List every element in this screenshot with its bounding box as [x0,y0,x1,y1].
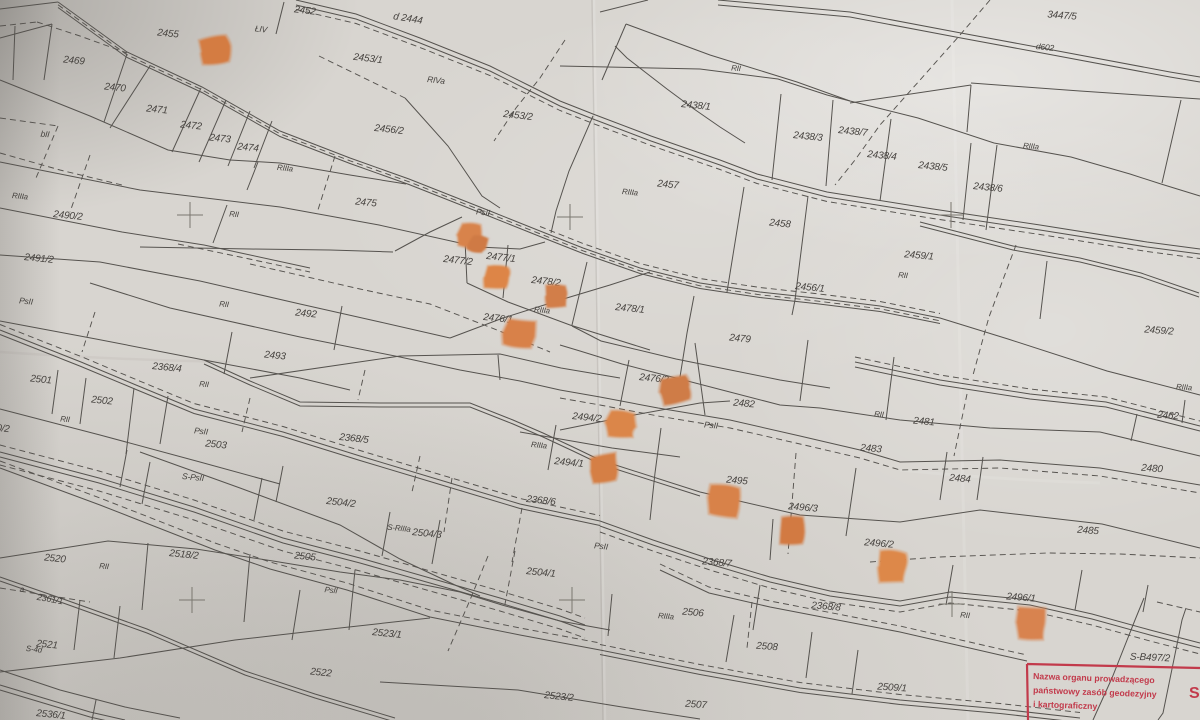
svg-text:2520: 2520 [43,552,67,565]
svg-text:2508: 2508 [755,641,779,654]
svg-text:2459/2: 2459/2 [1143,324,1175,337]
svg-text:2496/1: 2496/1 [1005,591,1036,604]
svg-text:2457: 2457 [656,178,680,191]
svg-text:2482: 2482 [732,397,756,410]
svg-text:2505: 2505 [293,550,317,563]
svg-text:PsII: PsII [19,295,35,306]
svg-text:RIIIa: RIIIa [1176,382,1193,392]
svg-text:2485: 2485 [1076,525,1100,538]
svg-text:2484: 2484 [948,472,972,485]
svg-text:d602: d602 [1035,41,1055,53]
svg-text:PsII: PsII [704,419,719,430]
svg-text:PsII: PsII [594,540,610,551]
svg-text:2506: 2506 [681,606,705,619]
svg-text:2455: 2455 [156,27,180,40]
svg-text:2458: 2458 [768,217,792,230]
svg-text:PsII: PsII [476,206,492,217]
svg-text:S-4d: S-4d [25,644,43,655]
svg-text:RIIIa: RIIIa [277,163,295,174]
svg-text:2507: 2507 [684,699,708,712]
svg-text:2481: 2481 [912,415,935,428]
svg-text:2501: 2501 [29,373,52,386]
svg-text:RII: RII [99,561,110,571]
svg-text:0/2: 0/2 [0,423,11,435]
svg-text:RII: RII [219,299,230,309]
svg-text:RII: RII [60,414,71,424]
svg-text:RIIIa: RIIIa [658,611,675,621]
svg-text:RIIIa: RIIIa [622,187,639,198]
svg-text:RII: RII [731,63,742,73]
svg-text:2480: 2480 [1140,463,1164,476]
svg-text:RII: RII [960,610,971,620]
svg-text:2493: 2493 [263,349,287,362]
svg-text:bII: bII [40,129,51,140]
svg-text:S: S [1189,685,1200,702]
svg-text:2492: 2492 [294,307,318,320]
svg-text:2462: 2462 [1156,410,1180,423]
svg-text:RIIIa: RIIIa [531,440,548,451]
svg-text:RIVa: RIVa [427,74,446,86]
svg-text:PsII: PsII [324,585,339,595]
svg-text:2536/1: 2536/1 [35,708,66,720]
svg-text:3447/5: 3447/5 [1047,9,1078,22]
svg-text:RII: RII [874,409,885,419]
svg-text:2522: 2522 [309,666,333,679]
svg-text:S-B497/2: S-B497/2 [1130,652,1171,665]
svg-text:PsII: PsII [194,425,210,436]
svg-text:RII: RII [898,270,909,280]
svg-text:RIIIa: RIIIa [12,191,29,202]
svg-text:2475: 2475 [354,196,378,209]
svg-text:RII: RII [199,379,210,389]
svg-text:2479: 2479 [728,332,752,345]
svg-text:RII: RII [229,209,240,219]
svg-text:2483: 2483 [859,442,883,455]
svg-text:2469: 2469 [62,54,86,67]
svg-text:2502: 2502 [90,394,114,407]
svg-text:2509/1: 2509/1 [876,681,907,694]
svg-text:RIIIa: RIIIa [1023,141,1040,151]
